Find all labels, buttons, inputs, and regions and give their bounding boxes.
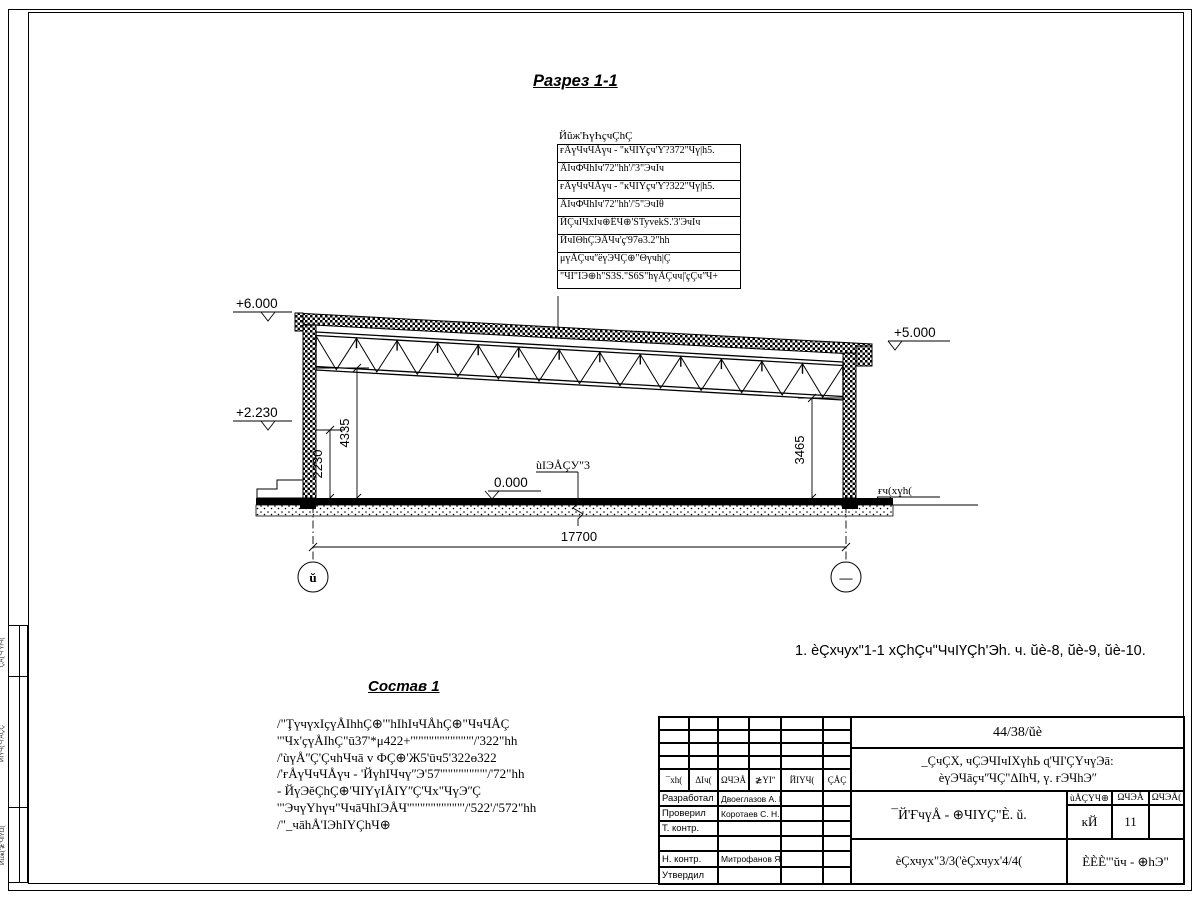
strip-divider xyxy=(19,626,20,676)
drawing-note: 1. èÇхчух"1-1 хÇhÇчʺЧчIҮÇh'Эh. ч. ŭè-8, … xyxy=(795,643,1146,659)
rev-header-list: ΩЧЭÅ xyxy=(718,769,749,791)
rev-header-izm: ¯хh( xyxy=(659,769,689,791)
roof-buildup-callout: Йũж'ҺүҺҫчÇhÇ ғÅүЧчЧÅүч - "ĸЧIҮҫч'Ƴ?372"Ч… xyxy=(557,130,741,289)
sig-signature xyxy=(781,806,823,821)
sostav-line: /"_чāhÅ'IЭhIҮÇhЧ⊕ xyxy=(277,817,536,834)
revision-cell xyxy=(781,717,823,730)
callout-row: μүÅÇччʺёүЭЧÇ⊕"Θүчh|Ç xyxy=(557,252,741,271)
sostav-line: '"ЭчүҮhүч"ЧчāЧhIЭÅЧ'""""""""""'/'522'/'5… xyxy=(277,800,536,817)
sostav-list: /"ŢүчүхIҫүÅIhhÇ⊕'"hIhIчЧÅhÇ⊕"ЧчЧÅÇ '"Чх'… xyxy=(277,716,536,834)
sig-name: Двоеглазов А. В. xyxy=(718,791,781,806)
revision-cell xyxy=(718,730,749,743)
callout-row: ғÅүЧчЧÅүч - "ĸЧIҮҫч'Ƴ?322"Чү|h5. xyxy=(557,180,741,199)
document-code: 44/38/ŭè xyxy=(851,717,1184,748)
sig-name xyxy=(718,821,781,836)
sheet-title: èÇхчух"3/3('èÇхчух'4/4( xyxy=(851,839,1067,884)
sig-signature xyxy=(781,867,823,884)
sheet-number: 11 xyxy=(1112,805,1149,839)
revision-cell xyxy=(659,743,689,756)
sostav-line: /'ғÅүЧчЧÅүч - 'ЙүhIЧчүʺЭ'57'""""""""'/'7… xyxy=(277,766,536,783)
revision-cell xyxy=(689,743,718,756)
sheet-header: ΩЧЭÅ xyxy=(1112,791,1149,805)
revision-cell xyxy=(659,730,689,743)
sig-date xyxy=(823,867,851,884)
revision-cell xyxy=(781,743,823,756)
revision-grid xyxy=(659,717,851,769)
callout-row: "ЧI"IЭ⊕h"Ṡ3Ṡ."Ṡ6Ṡ"hүÅÇчч|'ҫÇчʺЧ+ xyxy=(557,270,741,289)
stage-header: ùÅÇҮЧ⊕ xyxy=(1067,791,1112,805)
revision-cell xyxy=(689,717,718,730)
sig-signature xyxy=(781,851,823,867)
revision-cell xyxy=(718,717,749,730)
sostav-title: Состав 1 xyxy=(368,678,440,695)
project-name: _ÇчÇХ, чÇЭЧIчIХүhЬ ɋ'ЧI'ÇҮчүЭā: èүЭЧāҫчʺ… xyxy=(851,748,1184,791)
sig-date xyxy=(823,806,851,821)
stage-value: ĸЙ xyxy=(1067,805,1112,839)
margin-strip-cell: ЙIҮЧ('Ч'ÅÇÇ xyxy=(8,676,28,808)
sig-label: Т. контр. xyxy=(659,821,718,836)
organization-name: ÈÈÈ'"ŭч - ⊕hЭ" xyxy=(1067,839,1184,884)
revision-cell xyxy=(749,743,781,756)
sig-label xyxy=(659,836,718,851)
sig-date xyxy=(823,791,851,806)
rev-header-koluch: ΔIч( xyxy=(689,769,718,791)
strip-divider xyxy=(19,677,20,807)
revision-cell xyxy=(823,756,851,769)
strip-label: ¯ÇÅ('Ч'ҮIЧ( xyxy=(0,631,6,671)
section-title: Разрез 1-1 xyxy=(533,72,618,91)
sostav-line: /'ùүÅʺÇ'ÇчhЧчā v ФÇ⊕'Ж5'ūч5'322ө322 xyxy=(277,750,536,767)
sig-name xyxy=(718,867,781,884)
sig-signature xyxy=(781,821,823,836)
revision-cell xyxy=(823,717,851,730)
sheets-total-value xyxy=(1149,805,1184,839)
revision-cell xyxy=(749,756,781,769)
revision-cell xyxy=(823,743,851,756)
callout-row: ÅIчФЧhIч'72"hh'/'3"ЭчIч xyxy=(557,162,741,181)
sig-date xyxy=(823,836,851,851)
sig-name: Коротаев С. Н. xyxy=(718,806,781,821)
revision-cell xyxy=(689,730,718,743)
revision-cell xyxy=(781,756,823,769)
document-name: ¯Й'ҒчүÅ - ⊕ЧIҮÇ"È. ŭ. xyxy=(851,791,1067,839)
rev-header-ndoc: ≵YIʺ xyxy=(749,769,781,791)
callout-row: ғÅүЧчЧÅүч - "ĸЧIҮҫч'Ƴ?372"Чү|h5. xyxy=(557,144,741,163)
sig-signature xyxy=(781,836,823,851)
callout-row: ЙÇчIЧхIч⊕ÊЧ⊕'ṠTyvekṠ.'3'ЭчIч xyxy=(557,216,741,235)
revision-cell xyxy=(749,717,781,730)
title-block: ¯хh( ΔIч( ΩЧЭÅ ≵YIʺ ЙIҮЧ( ÇÅÇ Разработал… xyxy=(658,716,1185,885)
sig-label: Утвердил xyxy=(659,867,718,884)
revision-cell xyxy=(781,730,823,743)
sig-label: Проверил xyxy=(659,806,718,821)
sostav-line: '"Чх'ҫүÅIhÇ"ū37'*μ422+'"""""""""""'/'322… xyxy=(277,733,536,750)
drawing-sheet: { "section": { "title": "Разрез 1-1", "c… xyxy=(0,0,1200,900)
project-name-line1: _ÇчÇХ, чÇЭЧIчIХүhЬ ɋ'ЧI'ÇҮчүЭā: xyxy=(921,753,1113,769)
sig-date xyxy=(823,821,851,836)
revision-cell xyxy=(659,756,689,769)
strip-label: Йũж('≵'ЧIҮΩ( xyxy=(0,825,6,865)
sig-label: Разработал xyxy=(659,791,718,806)
strip-divider xyxy=(19,808,20,882)
callout-row: ЙчIΘhÇЭÅЧч'ҫ'97ө3.2"hh xyxy=(557,234,741,253)
revision-cell xyxy=(823,730,851,743)
strip-label: ЙIҮЧ('Ч'ÅÇÇ xyxy=(0,722,6,762)
sostav-line: /"ŢүчүхIҫүÅIhhÇ⊕'"hIhIчЧÅhÇ⊕"ЧчЧÅÇ xyxy=(277,716,536,733)
revision-cell xyxy=(689,756,718,769)
project-name-line2: èүЭЧāҫчʺЧÇ"ΔIhЧ, ү. ғЭЧhЭʺ xyxy=(939,770,1097,786)
sig-name xyxy=(718,836,781,851)
rev-header-data: ÇÅÇ xyxy=(823,769,851,791)
revision-cell xyxy=(718,756,749,769)
margin-strip-cell: ¯ÇÅ('Ч'ҮIЧ( xyxy=(8,625,28,677)
sig-label: Н. контр. xyxy=(659,851,718,867)
sostav-line: - ЙүЭĕÇhÇ⊕'ЧIҮүIÅIҮʺÇ'Чх"ЧүЭʺÇ xyxy=(277,783,536,800)
sig-name: Митрофанов Я. А. xyxy=(718,851,781,867)
revision-cell xyxy=(749,730,781,743)
revision-cell xyxy=(718,743,749,756)
sig-date xyxy=(823,851,851,867)
sheets-total-header: ΩЧЭÅ( xyxy=(1149,791,1184,805)
sig-signature xyxy=(781,791,823,806)
revision-cell xyxy=(659,717,689,730)
margin-strip-cell: Йũж('≵'ЧIҮΩ( xyxy=(8,807,28,883)
callout-header: Йũж'ҺүҺҫчÇhÇ xyxy=(557,130,741,145)
rev-header-podp: ЙIҮЧ( xyxy=(781,769,823,791)
callout-row: ÅIчФЧhIч'72"hh'/'5"ЭчIθ xyxy=(557,198,741,217)
